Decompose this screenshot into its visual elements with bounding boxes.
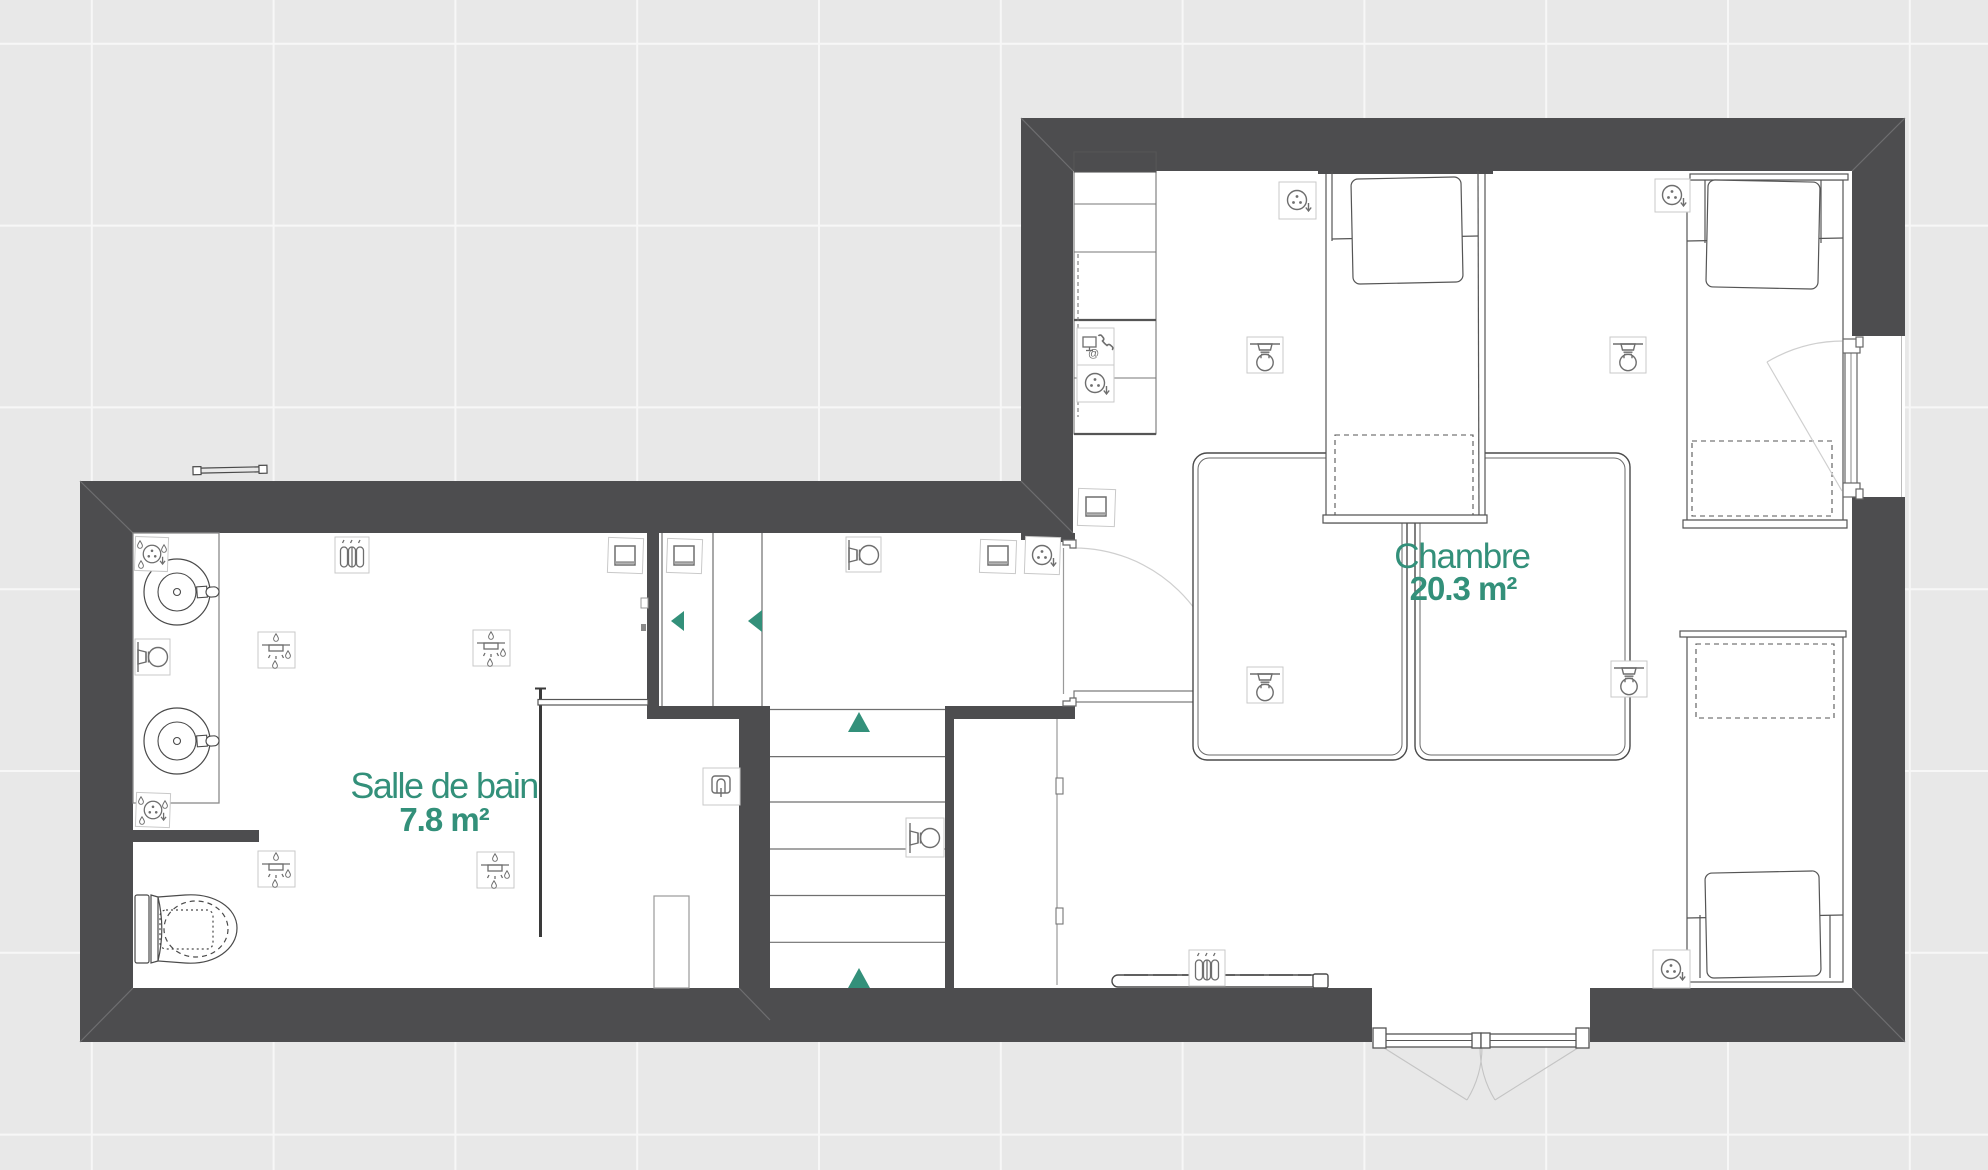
svg-text:@: @ (1088, 348, 1099, 360)
svg-text:Salle de bain: Salle de bain (350, 765, 537, 806)
svg-text:7.8 m²: 7.8 m² (399, 801, 489, 838)
svg-text:20.3 m²: 20.3 m² (1410, 570, 1518, 607)
